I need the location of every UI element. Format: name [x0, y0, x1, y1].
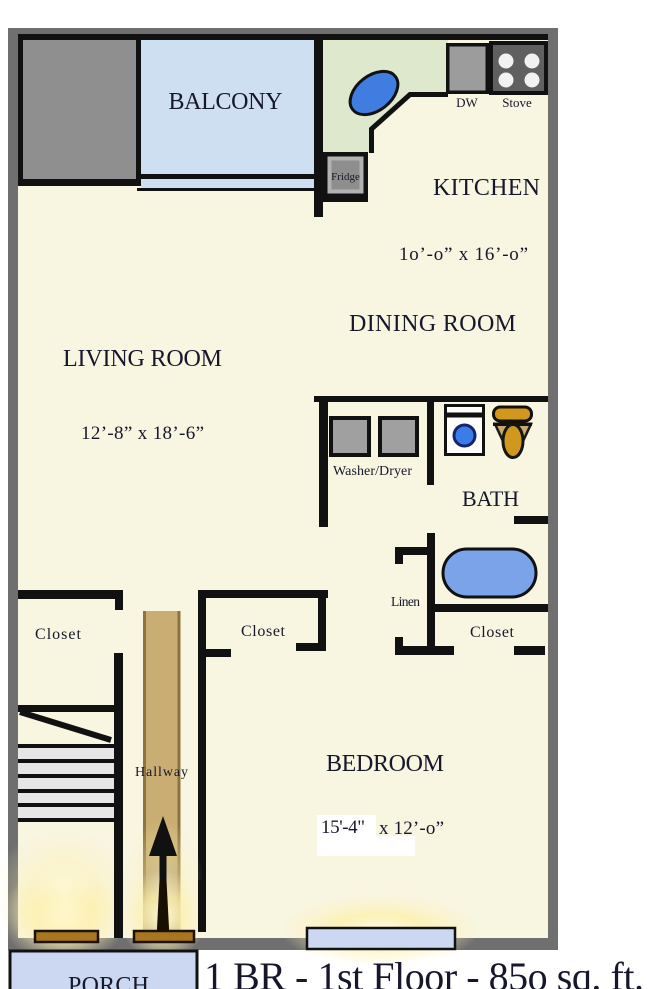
svg-text:12’-8” x 18’-6”: 12’-8” x 18’-6”	[81, 423, 204, 444]
svg-text:Fridge: Fridge	[331, 171, 360, 183]
svg-text:Closet: Closet	[35, 626, 82, 643]
svg-text:Washer/Dryer: Washer/Dryer	[333, 464, 412, 479]
svg-text:1 BR - 1st Floor - 85o sq. ft.: 1 BR - 1st Floor - 85o sq. ft.	[204, 954, 644, 989]
svg-text:KITCHEN: KITCHEN	[433, 175, 540, 201]
svg-text:BATH: BATH	[462, 486, 519, 511]
svg-text:15'-4": 15'-4"	[321, 817, 365, 838]
svg-text:x 12’-o”: x 12’-o”	[379, 818, 444, 839]
svg-text:DINING ROOM: DINING ROOM	[349, 311, 516, 337]
svg-text:BALCONY: BALCONY	[169, 89, 283, 115]
svg-text:LIVING ROOM: LIVING ROOM	[63, 346, 222, 372]
svg-text:Linen: Linen	[391, 594, 420, 609]
svg-text:BEDROOM: BEDROOM	[326, 751, 444, 777]
svg-text:Stove: Stove	[502, 95, 532, 110]
svg-text:1o’-o” x 16’-o”: 1o’-o” x 16’-o”	[399, 244, 528, 265]
svg-text:DW: DW	[456, 95, 478, 110]
svg-text:Closet: Closet	[470, 624, 515, 641]
svg-text:PORCH: PORCH	[68, 973, 149, 989]
svg-text:Closet: Closet	[241, 623, 286, 640]
svg-text:Hallway: Hallway	[135, 765, 188, 780]
